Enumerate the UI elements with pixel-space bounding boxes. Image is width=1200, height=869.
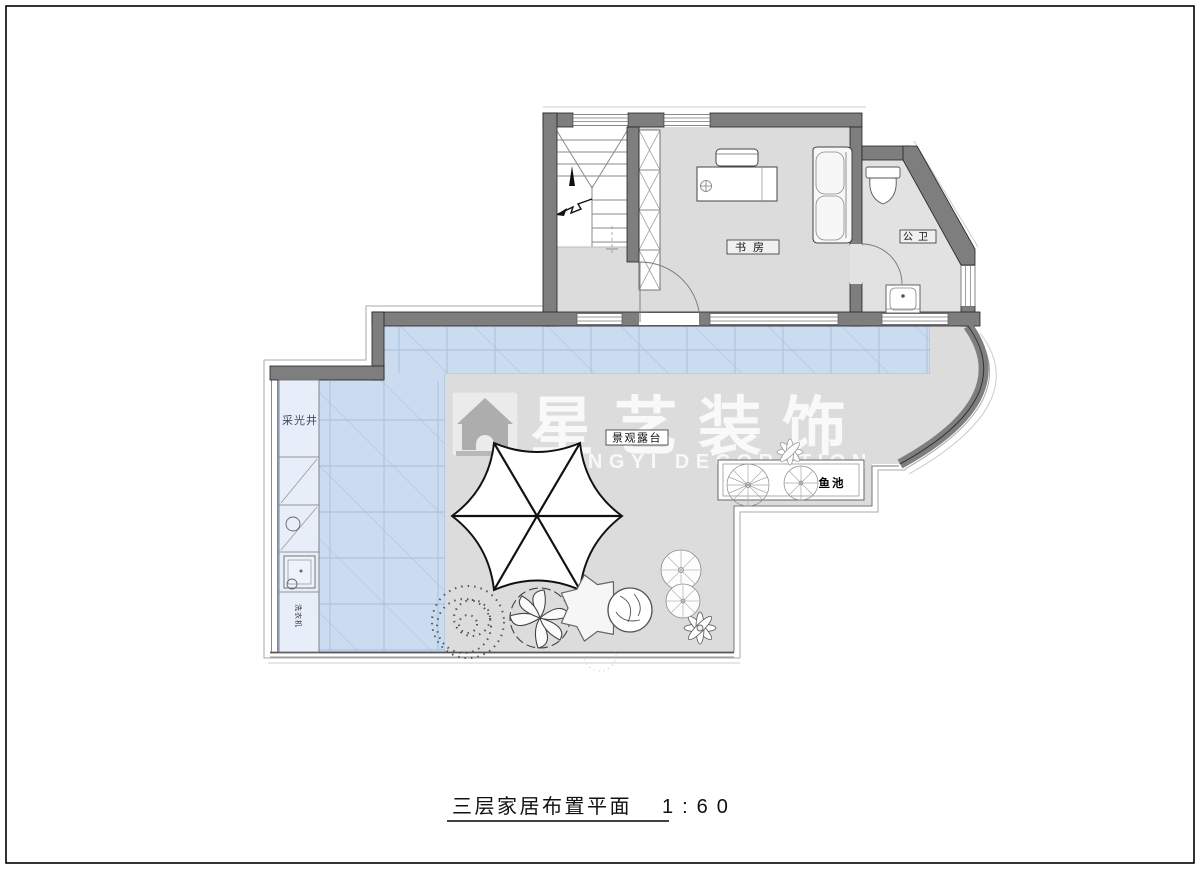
plan-title: 三层家居布置平面	[452, 795, 632, 818]
floor-plan: 星艺装饰 XINGYI DECORATION	[0, 0, 1200, 869]
bookshelf	[639, 130, 660, 290]
floor-plan-page: 星艺装饰 XINGYI DECORATION	[0, 0, 1200, 869]
swirl-plant	[510, 588, 570, 648]
lobed-plant	[608, 588, 652, 632]
title-block: 三层家居布置平面 1:60	[447, 795, 737, 821]
light-well-label: 采光井	[282, 413, 318, 427]
study-door-opening	[639, 313, 699, 325]
study-label: 书房	[727, 240, 779, 254]
wash-basin	[284, 556, 315, 588]
svg-text:书房: 书房	[735, 241, 771, 254]
fish-pond-label: 鱼池	[819, 476, 846, 490]
bathroom-door-opening	[850, 244, 862, 284]
toilet-tank	[866, 167, 900, 178]
svg-text:公卫: 公卫	[903, 232, 933, 243]
pond-palm-plant	[777, 439, 803, 465]
washing-machine-label: 洗衣机	[294, 604, 303, 628]
chair	[716, 149, 758, 166]
svg-text:景观露台: 景观露台	[612, 431, 662, 445]
bathroom-label: 公卫	[900, 230, 936, 243]
desk	[697, 167, 777, 201]
lotus-pair	[661, 550, 701, 618]
plan-scale: 1:60	[662, 796, 737, 818]
terrace-label: 景观露台	[606, 430, 668, 445]
